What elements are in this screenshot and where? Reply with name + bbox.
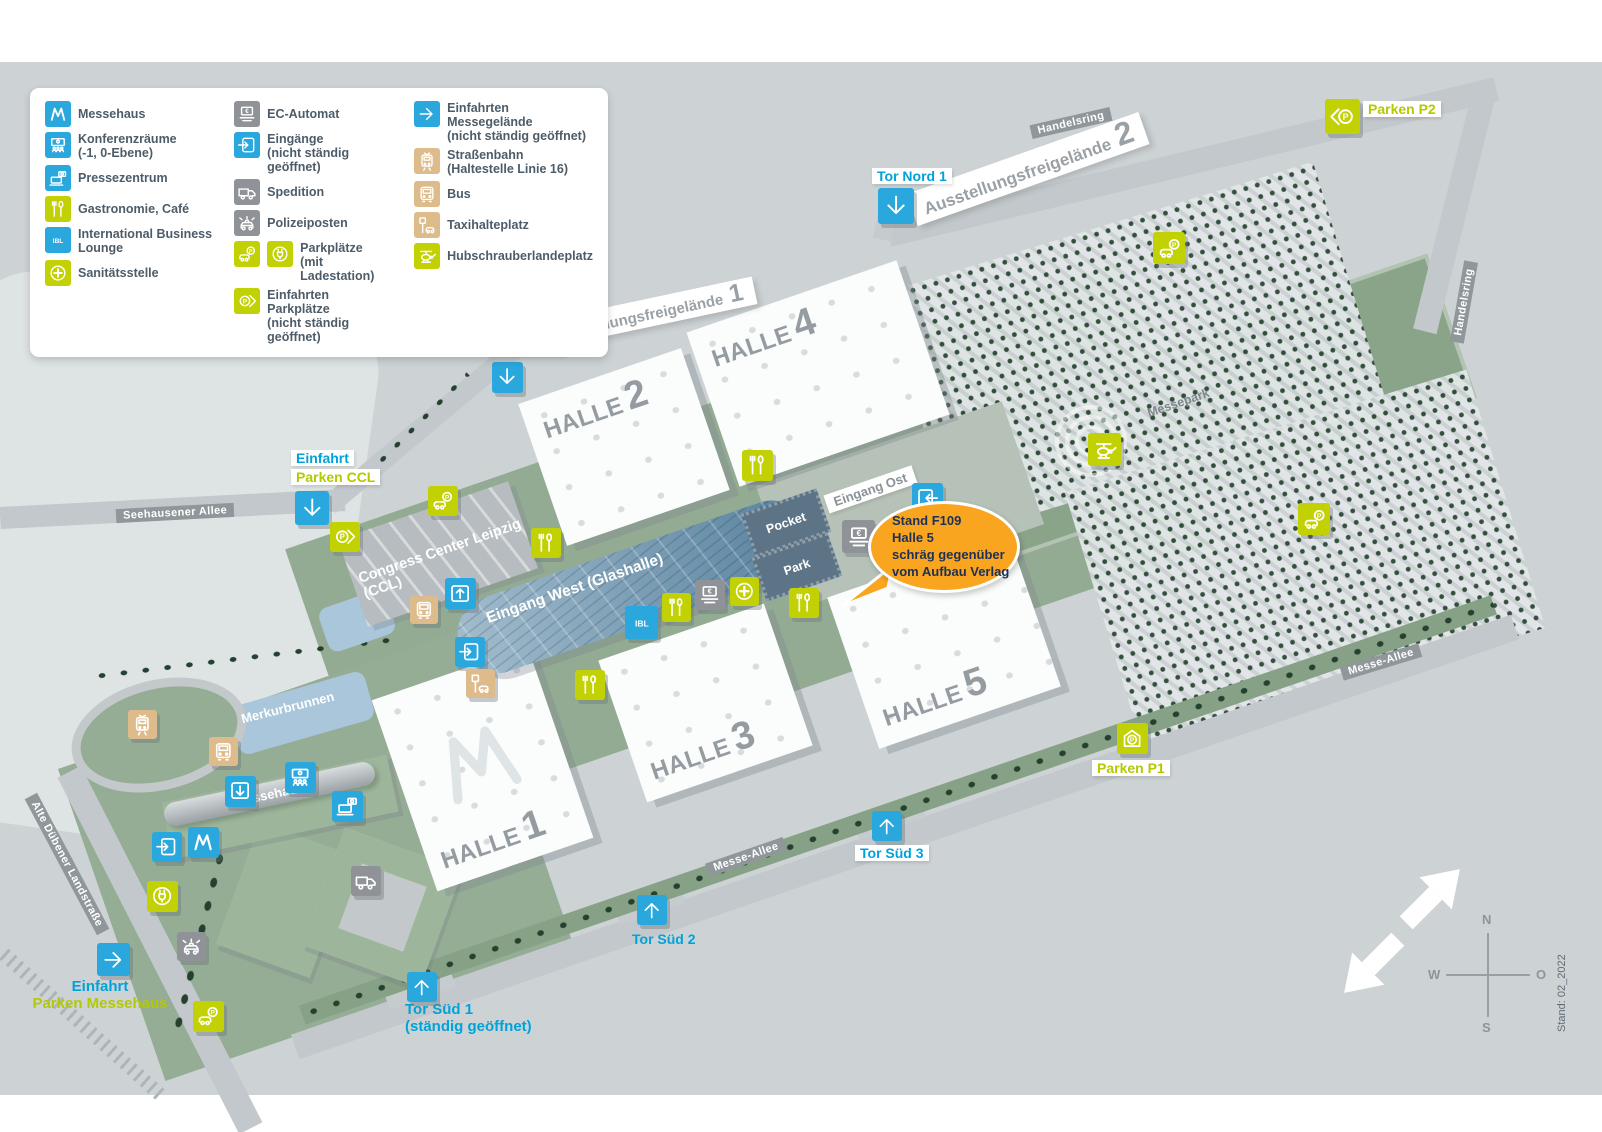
legend-item-label: Einfahrten Parkplätze(nicht ständig geöf… [267,288,392,344]
legend-item: Bus [414,181,593,207]
einfahrt-parken-ccl-icon [295,491,329,525]
spedition-icon [351,866,381,896]
gastro-icon [45,196,71,222]
compass-north: N [1482,912,1491,927]
taxi-icon [414,212,440,238]
konferenzraeume-icon [285,762,316,793]
legend-item-label: Straßenbahn(Haltestelle Linie 16) [447,148,568,176]
messehaus-logo-icon [188,827,219,858]
ibl-icon: IBL [625,606,658,639]
svg-text:P: P [249,249,253,255]
svg-text:IBL: IBL [635,618,649,628]
einfahrt-parken-messehaus-icon [97,943,130,976]
legend-column-1: MessehausKonferenzräume(-1, 0-Ebene)Pres… [45,101,212,344]
legend-item: Hubschrauberlandeplatz [414,243,593,269]
gate-tor-sued-2-icon [637,895,667,925]
legend-item-label: International Business Lounge [78,227,212,255]
parken-p1-label: Parken P1 [1092,760,1170,776]
parken-messehaus-icon: P [193,1001,224,1032]
legend-item: Gastronomie, Café [45,196,212,222]
compass-south: S [1482,1020,1491,1035]
polizeiposten-icon [177,932,206,961]
parken-icon: P [234,241,260,267]
svg-text:P: P [1130,738,1135,745]
compass-horizontal-line [1446,974,1530,976]
pressezentrum-icon [332,791,363,822]
gastronomie-ccl-icon [531,528,561,558]
legend-item: Messehaus [45,101,212,127]
ladestation-messehaus-icon [147,881,178,912]
eingang-glashalle-sued-icon [455,637,485,667]
leipzig-messe-map: HALLE2 HALLE4 HALLE3 HALLE5 HALLE1 Pocke… [0,0,1602,1132]
legend-item: Pressezentrum [45,165,212,191]
legend-item-label: Messehaus [78,101,145,127]
svg-text:IBL: IBL [53,238,64,245]
gate-tor-sued-2-label: Tor Süd 2 [632,931,696,947]
map-version-label: Stand: 02_2022 [1556,954,1568,1032]
gastronomie-halle5-west-icon [789,588,819,618]
legend-item: Spedition [234,179,392,205]
callout-bubble: Stand F109 Halle 5 schräg gegenüber vom … [868,501,1020,593]
gastronomie-mall-nord-icon [742,450,773,481]
legend-column-3: Einfahrten Messegelände(nicht ständig ge… [414,101,593,344]
legend-item: Sanitätsstelle [45,260,212,286]
svg-text:€: € [856,528,861,537]
svg-text:P: P [1342,112,1348,122]
svg-text:P: P [1171,242,1176,249]
heli-icon [414,243,440,269]
eingang-messehaus-nord-icon [225,776,256,807]
einfahrt-parken-ccl-label: Einfahrt Parken CCL [291,450,380,487]
messehaus-logo-icon [45,101,71,127]
legend-item-label: Einfahrten Messegelände(nicht ständig ge… [447,101,593,143]
ibl-icon: IBL [45,227,71,253]
bus-schleife-icon [209,737,238,766]
legend-column-2: €EC-AutomatEingänge(nicht ständig geöffn… [234,101,392,344]
presse-icon [45,165,71,191]
legend-item-label: Bus [447,181,471,207]
laden-icon [267,241,293,267]
svg-text:P: P [1316,513,1321,520]
tram-icon [128,710,157,739]
einfahrt-parkplaetze-ccl-icon: P [330,522,360,552]
taxi-glashalle-icon [466,669,495,698]
gate-tor-sued-1-icon [407,972,437,1002]
parken-p1-icon: P [1117,723,1148,754]
legend-item-label: Taxihalteplatz [447,212,529,238]
gastronomie-halle1-nord-icon [575,670,605,700]
legend-item: IBLInternational Business Lounge [45,227,212,255]
legend-item-label: Pressezentrum [78,165,168,191]
polizei-icon [234,210,260,236]
legend-item-label: Konferenzräume(-1, 0-Ebene) [78,132,177,160]
legend-item: €EC-Automat [234,101,392,127]
einfahrt-p-icon: P [234,288,260,314]
sanitaetsstelle-icon [730,577,759,606]
gate-tor-nord-1-icon [878,188,914,224]
legend-item-label: Spedition [267,179,324,205]
legend-item: Polizeiposten [234,210,392,236]
svg-text:P: P [211,1010,216,1017]
sani-icon [45,260,71,286]
legend-item: Taxihalteplatz [414,212,593,238]
parken-ost-icon: P [1298,503,1330,535]
svg-text:€: € [708,587,712,596]
eingang-ccl-icon [445,578,476,609]
legend-item-label: Polizeiposten [267,210,348,236]
spedition-icon [234,179,260,205]
legend-panel: MessehausKonferenzräume(-1, 0-Ebene)Pres… [30,88,608,357]
bus-ccl-icon [410,596,438,624]
arrow-right-icon [414,101,440,127]
legend-item: Straßenbahn(Haltestelle Linie 16) [414,148,593,176]
bus-icon [414,181,440,207]
legend-item-label: Parkplätze(mit Ladestation) [300,241,392,283]
hubschrauberlandeplatz-icon [1088,433,1121,466]
legend-item-label: Eingänge(nicht ständig geöffnet) [267,132,392,174]
legend-item-label: Gastronomie, Café [78,196,189,222]
gate-tor-nord-1-label: Tor Nord 1 [872,168,952,184]
tram-icon [414,148,440,174]
compass-east: O [1536,967,1546,982]
gate-tor-sued-1-label: Tor Süd 1(ständig geöffnet) [405,1001,532,1036]
svg-text:P: P [445,495,449,502]
ec-automat-glashalle-icon: € [695,580,725,610]
legend-item: Eingänge(nicht ständig geöffnet) [234,132,392,174]
parken-handelsring-icon: P [1153,232,1185,264]
eingang-messehaus-west-icon [152,832,182,862]
svg-text:P: P [340,533,345,542]
legend-item-label: Sanitätsstelle [78,260,159,286]
gate-tor-sued-3-icon [872,811,902,841]
gastronomie-glashalle-icon [662,593,691,622]
gate-tor-sued-3-label: Tor Süd 3 [855,845,929,861]
parken-ladestation-ccl-icon: P [428,486,458,516]
legend-item: Konferenzräume(-1, 0-Ebene) [45,132,212,160]
legend-item-label: Hubschrauberlandeplatz [447,243,593,269]
compass-west: W [1428,967,1440,982]
legend-item: Einfahrten Messegelände(nicht ständig ge… [414,101,593,143]
gate-tor-nord-2-icon [492,362,523,393]
einfahrt-parken-messehaus-label: Einfahrt Parken Messehaus [15,978,185,1013]
ec-icon: € [234,101,260,127]
svg-text:P: P [243,298,248,305]
legend-item-label: EC-Automat [267,101,339,127]
konferenz-icon [45,132,71,158]
legend-item: PEinfahrten Parkplätze(nicht ständig geö… [234,288,392,344]
parken-p2-label: Parken P2 [1363,101,1441,117]
parken-p2-icon: P [1325,99,1360,134]
svg-text:€: € [245,108,249,115]
eingang-icon [234,132,260,158]
legend-item: PParkplätze(mit Ladestation) [234,241,392,283]
